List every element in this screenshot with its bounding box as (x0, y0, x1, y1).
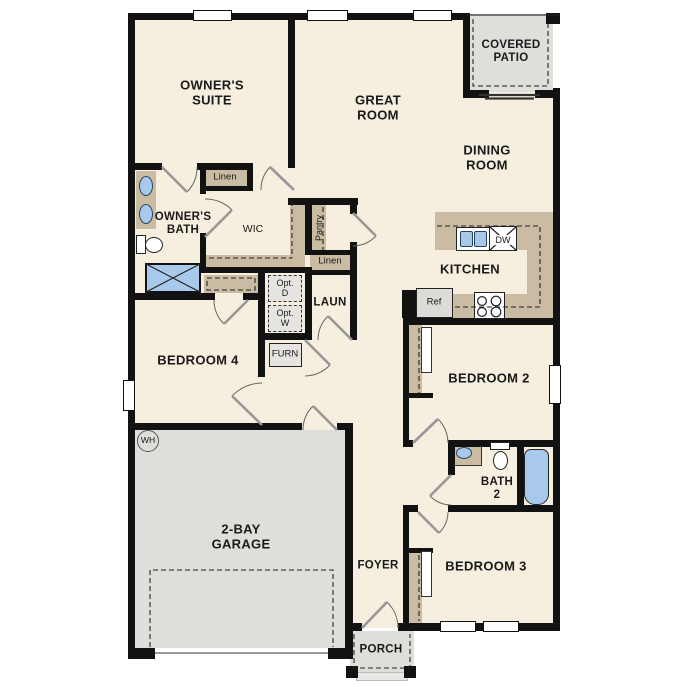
room-label-foyer: FOYER (357, 560, 398, 573)
kitchen-sink-bowl (460, 231, 473, 247)
room-label-bedroom2: BEDROOM 2 (448, 372, 529, 387)
room-label-bath2: BATH 2 (481, 476, 513, 502)
wall (403, 325, 409, 445)
kitchen-sink-bowl (474, 231, 487, 247)
window (413, 10, 452, 21)
window (123, 380, 135, 411)
room-label-covered-patio: COVERED PATIO (482, 39, 541, 65)
wall (553, 88, 560, 631)
wall (200, 168, 206, 194)
wall (128, 423, 302, 430)
wall (288, 20, 295, 168)
porch-post (346, 666, 358, 678)
room-label-laundry: LAUN (313, 297, 346, 310)
wall (305, 205, 312, 252)
wall (200, 186, 253, 191)
wall (403, 505, 409, 631)
kitchen-counter-right (527, 250, 553, 296)
wall (517, 623, 560, 631)
room-label-great-room: GREAT ROOM (355, 93, 401, 122)
fixture-label-dishwasher: DW (495, 235, 512, 245)
room-label-bedroom4: BEDROOM 4 (157, 354, 238, 369)
porch-post (404, 666, 416, 678)
fixture-label-furnace: FURN (272, 350, 298, 361)
window (193, 10, 232, 21)
shower-icon (145, 263, 201, 293)
wall (345, 423, 353, 659)
wall (243, 293, 265, 300)
closet-label-linen-suite: Linen (213, 173, 236, 184)
wall (258, 272, 265, 377)
room-label-wic: WIC (243, 224, 263, 236)
wall (305, 250, 351, 255)
bath2-sink-icon (456, 447, 472, 459)
toilet-icon (145, 237, 163, 253)
wall (128, 13, 135, 659)
room-label-garage: 2-BAY GARAGE (212, 522, 271, 551)
fixture-label-opt-dryer: Opt. D (276, 278, 293, 298)
porch-step (356, 672, 408, 681)
patio-post (546, 13, 560, 24)
wall (305, 275, 312, 335)
wall (403, 440, 413, 447)
closet-door-leaf (421, 551, 432, 597)
wall (350, 242, 357, 340)
window (307, 10, 348, 21)
wall (135, 163, 162, 170)
wall (463, 90, 489, 98)
wall (200, 267, 312, 273)
window (483, 621, 519, 632)
wall (128, 648, 155, 659)
wall (463, 13, 470, 96)
wall (328, 648, 353, 659)
floor-plan: OWNER'S SUITE GREAT ROOM COVERED PATIO D… (0, 0, 687, 687)
garage-door-line (155, 652, 328, 654)
fixture-label-opt-washer: Opt. W (276, 308, 293, 328)
closet-label-pantry: Pantry (314, 215, 324, 241)
wall (350, 198, 357, 214)
wall (535, 90, 553, 98)
toilet-icon (490, 442, 510, 450)
wall (258, 333, 312, 340)
hall-storage (204, 275, 258, 293)
wall (288, 198, 358, 205)
fixture-label-refrigerator: Ref (427, 298, 442, 309)
wic-shelving-bottom (206, 255, 302, 267)
room-label-bedroom3: BEDROOM 3 (445, 560, 526, 575)
wall (353, 623, 362, 631)
room-label-dining-room: DINING ROOM (463, 143, 510, 172)
bathtub-icon (524, 449, 549, 505)
toilet-icon (493, 451, 508, 470)
wall (448, 447, 455, 475)
bath-sink-icon (139, 176, 153, 196)
window (549, 365, 561, 404)
wall (403, 318, 553, 325)
wall (448, 505, 553, 512)
room-label-kitchen: KITCHEN (440, 263, 500, 278)
wall (403, 393, 433, 398)
wall (200, 233, 206, 267)
wall (517, 447, 524, 505)
room-label-porch: PORCH (359, 644, 402, 657)
window (440, 621, 476, 632)
room-label-owners-suite: OWNER'S SUITE (180, 78, 244, 107)
bath-sink-icon (139, 204, 153, 224)
room-label-owners-bath: OWNER'S BATH (155, 211, 212, 237)
stove-icon (474, 292, 505, 319)
wall (402, 290, 416, 318)
wall (128, 293, 215, 300)
fixture-label-water-heater: WH (141, 436, 155, 446)
closet-label-linen-hall: Linen (318, 257, 341, 268)
closet-door-leaf (421, 327, 432, 373)
